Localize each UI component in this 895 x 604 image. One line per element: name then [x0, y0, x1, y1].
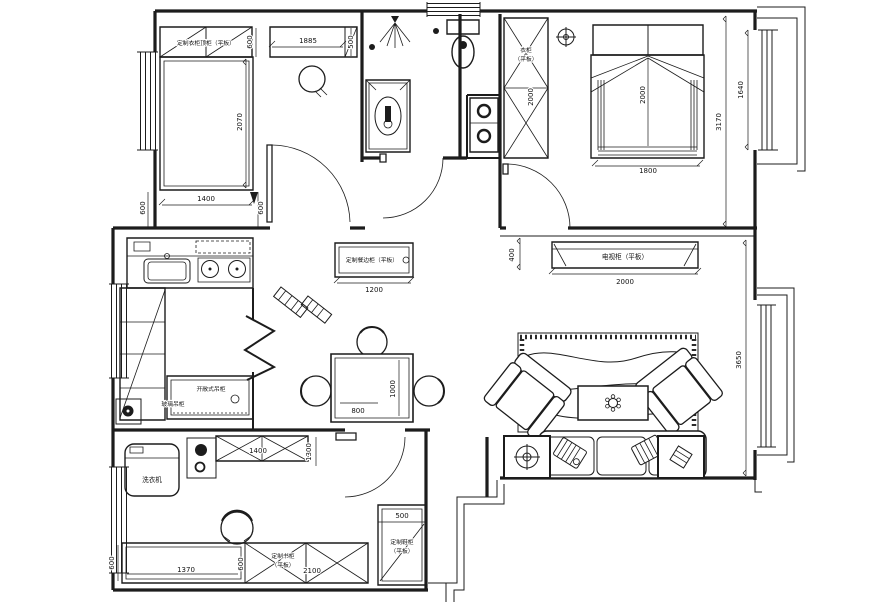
window-left-top [137, 52, 158, 150]
end-table [658, 436, 704, 478]
dim-table-length: 1000 [389, 380, 397, 398]
wardrobe-top-cabinet: 定制衣柜顶柜（平板） [160, 27, 252, 57]
bookcase-label-1: 定制书柜 [271, 552, 294, 560]
dim-sideboard: 1200 [365, 286, 383, 294]
toilet [447, 20, 479, 68]
door-master [503, 164, 570, 228]
stove [198, 258, 250, 282]
dim-bed-master-length: 2000 [639, 86, 647, 104]
tv-cabinet-label: 电视柜（平板） [602, 252, 648, 261]
dim-desk-gap: 600 [237, 557, 245, 570]
door-study [336, 433, 405, 497]
sideboard: 定制餐边柜（平板） 1200 [334, 243, 414, 294]
dim-study-door-side: 1300 [305, 443, 313, 461]
dim-wardrobe-master: 2000 [527, 88, 535, 106]
shoe-cabinet-label-2: （平板） [390, 547, 413, 555]
dim-room-a-left: 600 [139, 201, 147, 214]
ceiling-light-icon [556, 27, 576, 47]
window-bathroom-top [427, 2, 480, 17]
bookcase-label-2: （平板） [271, 561, 294, 569]
glass-cabinet-label: 玻璃吊柜 [161, 400, 184, 408]
bay-window-master [757, 7, 805, 171]
bathroom [366, 16, 498, 218]
open-door-leaf [301, 296, 331, 323]
building-outline [428, 480, 762, 602]
dim-shoe-cabinet: 500 [395, 512, 408, 520]
washing-machine-label: 洗衣机 [142, 475, 162, 484]
wardrobe-label-2: （平板） [514, 55, 537, 63]
wall-cabinet: 1400 [216, 436, 308, 461]
dim-room-a-bottom: 1400 [197, 195, 215, 203]
window-left-kitchen [109, 284, 129, 378]
study-room: 洗衣机 1400 1300 定制书柜 （平板） 2100 [108, 433, 426, 585]
floor-plan-drawing: 定制衣柜顶柜（平板） 600 1885 500 2070 600 1400 60… [0, 0, 895, 604]
dim-living-depth: 3650 [735, 351, 743, 369]
shoe-cabinet: 500 定制鞋柜 （平板） [378, 505, 426, 585]
master-bedroom: 衣柜 （平板） 2000 2000 1800 3170 1640 [503, 16, 748, 228]
wardrobe-top-label: 定制衣柜顶柜（平板） [177, 39, 235, 47]
open-shelf-label: 开敞式吊柜 [197, 385, 226, 393]
stool [299, 66, 325, 92]
dim-cabinet-a-depth: 500 [347, 35, 355, 48]
dim-room-a-right: 600 [257, 201, 265, 214]
shoe-cabinet-label-1: 定制鞋柜 [390, 538, 413, 546]
dim-bay-master: 1640 [737, 81, 745, 99]
desk-chair [221, 511, 253, 544]
end-table [504, 436, 550, 478]
dim-tv-cabinet: 2000 [616, 278, 634, 286]
dining-area: 定制餐边柜（平板） 1200 1000 800 [301, 243, 444, 422]
vanity-sink [366, 80, 410, 152]
bay-window-living [757, 288, 794, 462]
dim-bookcase: 2100 [303, 567, 321, 575]
folding-door [245, 316, 274, 380]
door-room-a [267, 145, 350, 222]
dim-wardrobe-depth: 600 [246, 35, 254, 48]
shower-head-icon [380, 16, 410, 48]
floor-drain-icon [433, 28, 439, 34]
tv-cabinet: 电视柜（平板） [552, 242, 698, 268]
dining-chair [414, 376, 444, 406]
armchair [483, 350, 575, 441]
wardrobe-label-1: 衣柜 [520, 46, 532, 54]
floor-plan-canvas: 定制衣柜顶柜（平板） 600 1885 500 2070 600 1400 60… [0, 0, 895, 604]
dim-desk-depth: 600 [108, 556, 116, 569]
washing-machine: 洗衣机 [125, 444, 179, 496]
bed-single: 2070 [160, 57, 253, 190]
dim-table-width: 800 [351, 407, 364, 415]
dim-study-cabinet: 1400 [249, 447, 267, 455]
living-room: 电视柜（平板） 2000 400 [483, 238, 746, 478]
walls [113, 11, 757, 590]
water-heater-unit [470, 98, 498, 152]
dim-desk: 1370 [177, 566, 195, 574]
dim-master-depth: 3170 [715, 113, 723, 131]
desk-and-bookcase: 定制书柜 （平板） 2100 1370 600 600 [108, 543, 368, 583]
dim-cabinet-a: 1885 [299, 37, 317, 45]
dining-chair [357, 327, 387, 357]
dining-table: 1000 800 [331, 354, 413, 422]
dining-chair [301, 376, 331, 406]
kitchen: 开敞式吊柜 玻璃吊柜 [116, 238, 332, 424]
utility-sink [187, 438, 216, 478]
room-a-bottom-dims: 600 1400 600 [139, 192, 265, 228]
bedroom-secondary: 定制衣柜顶柜（平板） 600 1885 500 2070 600 1400 60… [139, 27, 357, 228]
cabinet-room-a: 1885 500 [269, 27, 357, 57]
wardrobe-master: 衣柜 （平板） 2000 [504, 18, 548, 158]
dim-bed-a: 2070 [236, 113, 244, 131]
kitchen-sink [144, 254, 190, 284]
dim-bed-master-width: 1800 [639, 167, 657, 175]
floor-drain-icon [369, 44, 375, 50]
door-bathroom [380, 154, 443, 218]
lower-shelf-unit: 开敞式吊柜 玻璃吊柜 [161, 376, 253, 419]
sideboard-label: 定制餐边柜（平板） [346, 256, 398, 264]
coffee-table [578, 386, 648, 420]
dim-tv-offset: 400 [508, 248, 516, 261]
bed-master: 2000 [591, 25, 704, 158]
